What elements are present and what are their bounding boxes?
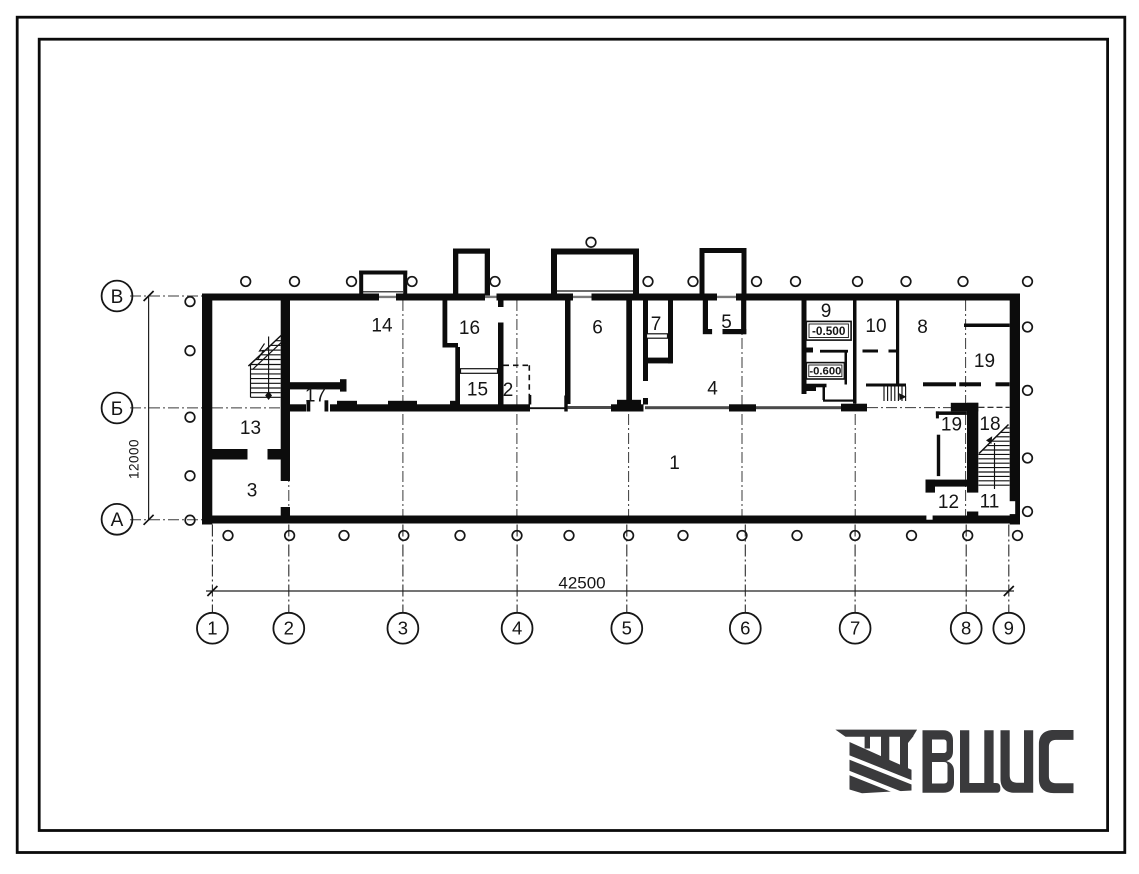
- svg-text:2: 2: [503, 380, 514, 401]
- svg-text:11: 11: [980, 492, 1000, 513]
- svg-text:17: 17: [305, 386, 326, 407]
- svg-text:9: 9: [821, 301, 832, 322]
- svg-text:19: 19: [974, 351, 995, 372]
- svg-text:-0.600: -0.600: [809, 365, 841, 377]
- svg-text:12: 12: [938, 492, 959, 513]
- svg-text:14: 14: [371, 316, 393, 337]
- svg-text:18: 18: [979, 414, 1000, 435]
- svg-text:9: 9: [1004, 618, 1014, 639]
- svg-text:15: 15: [467, 380, 488, 401]
- svg-text:В: В: [111, 287, 124, 308]
- svg-text:42500: 42500: [558, 574, 605, 593]
- svg-text:4: 4: [512, 618, 522, 639]
- svg-text:10: 10: [865, 316, 886, 337]
- svg-text:12000: 12000: [127, 439, 142, 479]
- svg-text:3: 3: [398, 618, 408, 639]
- svg-text:7: 7: [850, 618, 860, 639]
- svg-text:8: 8: [917, 317, 928, 338]
- svg-text:4: 4: [707, 379, 718, 400]
- svg-text:Б: Б: [111, 399, 123, 420]
- svg-text:16: 16: [459, 318, 480, 339]
- svg-text:А: А: [111, 510, 124, 531]
- svg-text:6: 6: [592, 318, 603, 339]
- svg-text:5: 5: [721, 312, 732, 333]
- svg-text:7: 7: [651, 314, 662, 335]
- svg-text:1: 1: [207, 618, 217, 639]
- svg-text:1: 1: [669, 453, 680, 474]
- svg-text:-0.500: -0.500: [812, 324, 846, 338]
- svg-text:2: 2: [284, 618, 294, 639]
- svg-text:3: 3: [247, 481, 258, 502]
- svg-text:5: 5: [622, 618, 632, 639]
- svg-text:6: 6: [740, 618, 750, 639]
- svg-text:13: 13: [240, 418, 261, 439]
- svg-text:8: 8: [961, 618, 971, 639]
- svg-text:19: 19: [941, 415, 962, 436]
